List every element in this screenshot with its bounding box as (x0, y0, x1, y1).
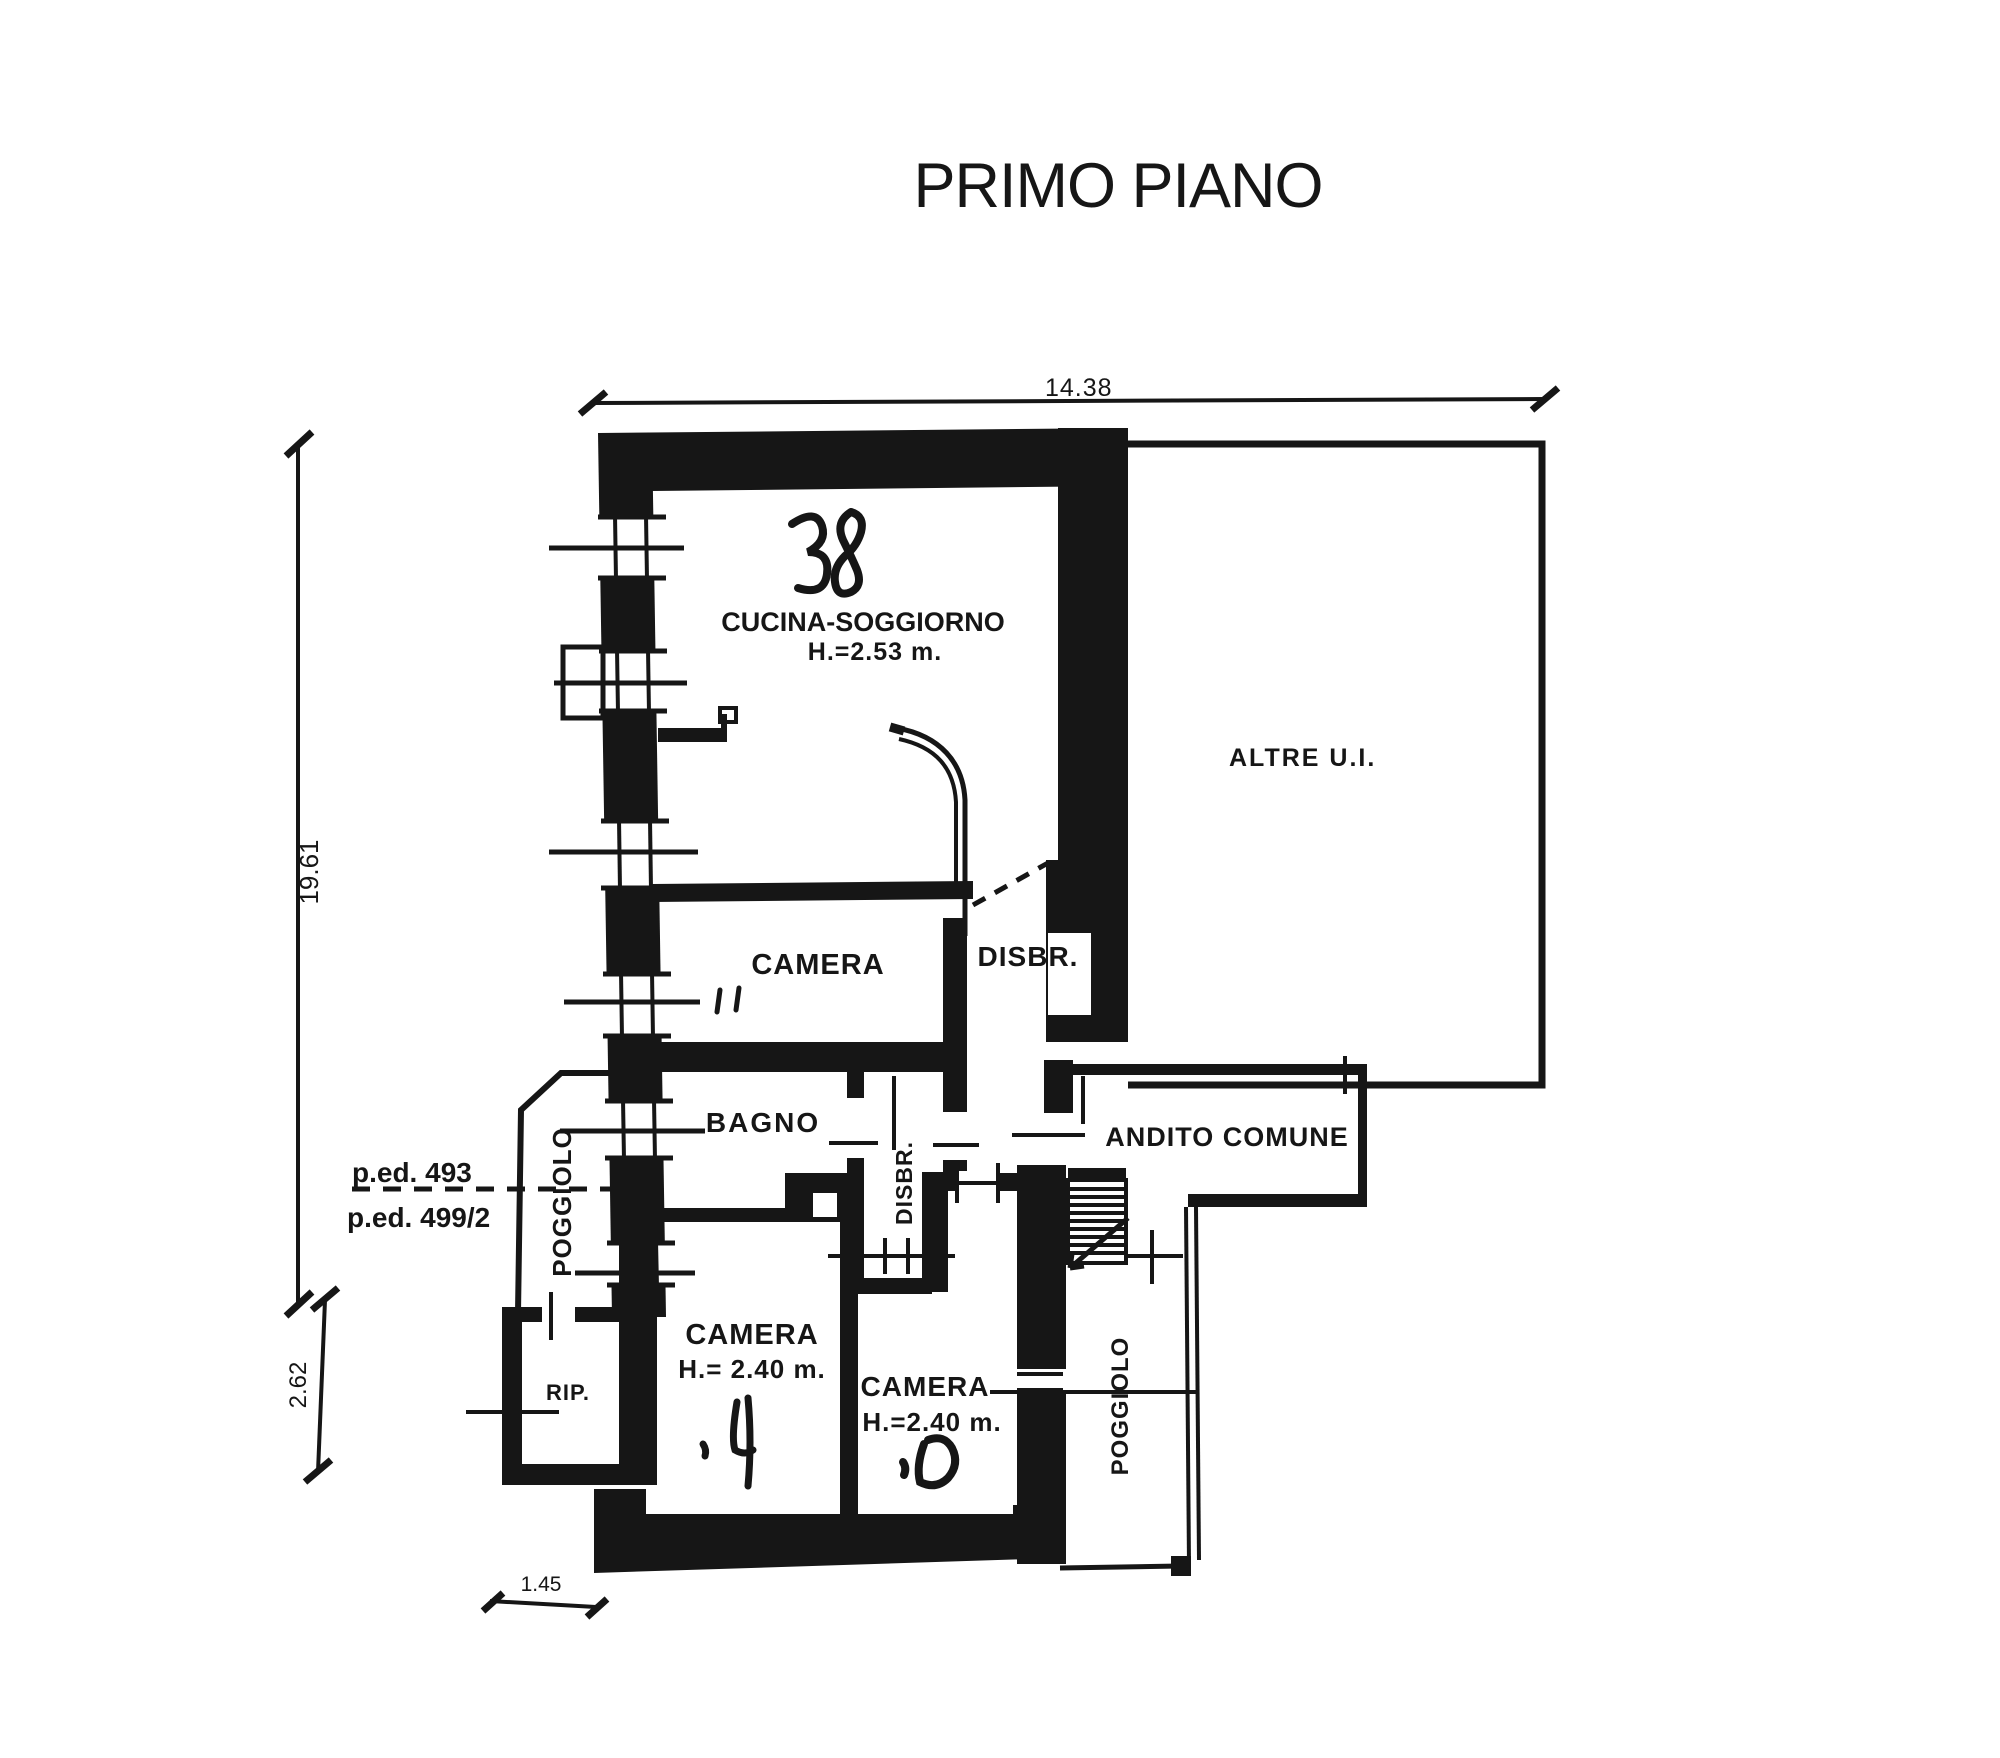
svg-text:H.= 2.40 m.: H.= 2.40 m. (678, 1354, 826, 1384)
svg-text:14.38: 14.38 (1045, 374, 1113, 402)
svg-text:H.=2.53 m.: H.=2.53 m. (808, 638, 942, 666)
svg-text:p.ed. 493: p.ed. 493 (352, 1157, 472, 1188)
svg-text:CAMERA: CAMERA (685, 1319, 818, 1351)
svg-text:POGGIOLO: POGGIOLO (1107, 1337, 1134, 1476)
svg-text:p.ed. 499/2: p.ed. 499/2 (347, 1202, 490, 1233)
svg-text:19.61: 19.61 (294, 839, 324, 904)
svg-text:DISBR.: DISBR. (978, 941, 1079, 972)
svg-text:H.=2.40 m.: H.=2.40 m. (862, 1407, 1001, 1437)
svg-text:ANDITO COMUNE: ANDITO COMUNE (1105, 1122, 1349, 1152)
svg-text:BAGNO: BAGNO (706, 1107, 820, 1138)
svg-text:ALTRE U.I.: ALTRE U.I. (1229, 744, 1376, 772)
svg-text:PRIMO PIANO: PRIMO PIANO (913, 151, 1322, 221)
svg-text:CAMERA: CAMERA (861, 1371, 990, 1402)
svg-text:CUCINA-SOGGIORNO: CUCINA-SOGGIORNO (721, 607, 1005, 637)
svg-text:2.62: 2.62 (285, 1362, 312, 1409)
svg-text:1.45: 1.45 (521, 1573, 562, 1596)
svg-text:DISBR.: DISBR. (891, 1141, 917, 1225)
svg-text:POGGIOLO: POGGIOLO (547, 1127, 577, 1277)
svg-text:RIP.: RIP. (546, 1380, 590, 1405)
svg-text:CAMERA: CAMERA (751, 949, 884, 981)
